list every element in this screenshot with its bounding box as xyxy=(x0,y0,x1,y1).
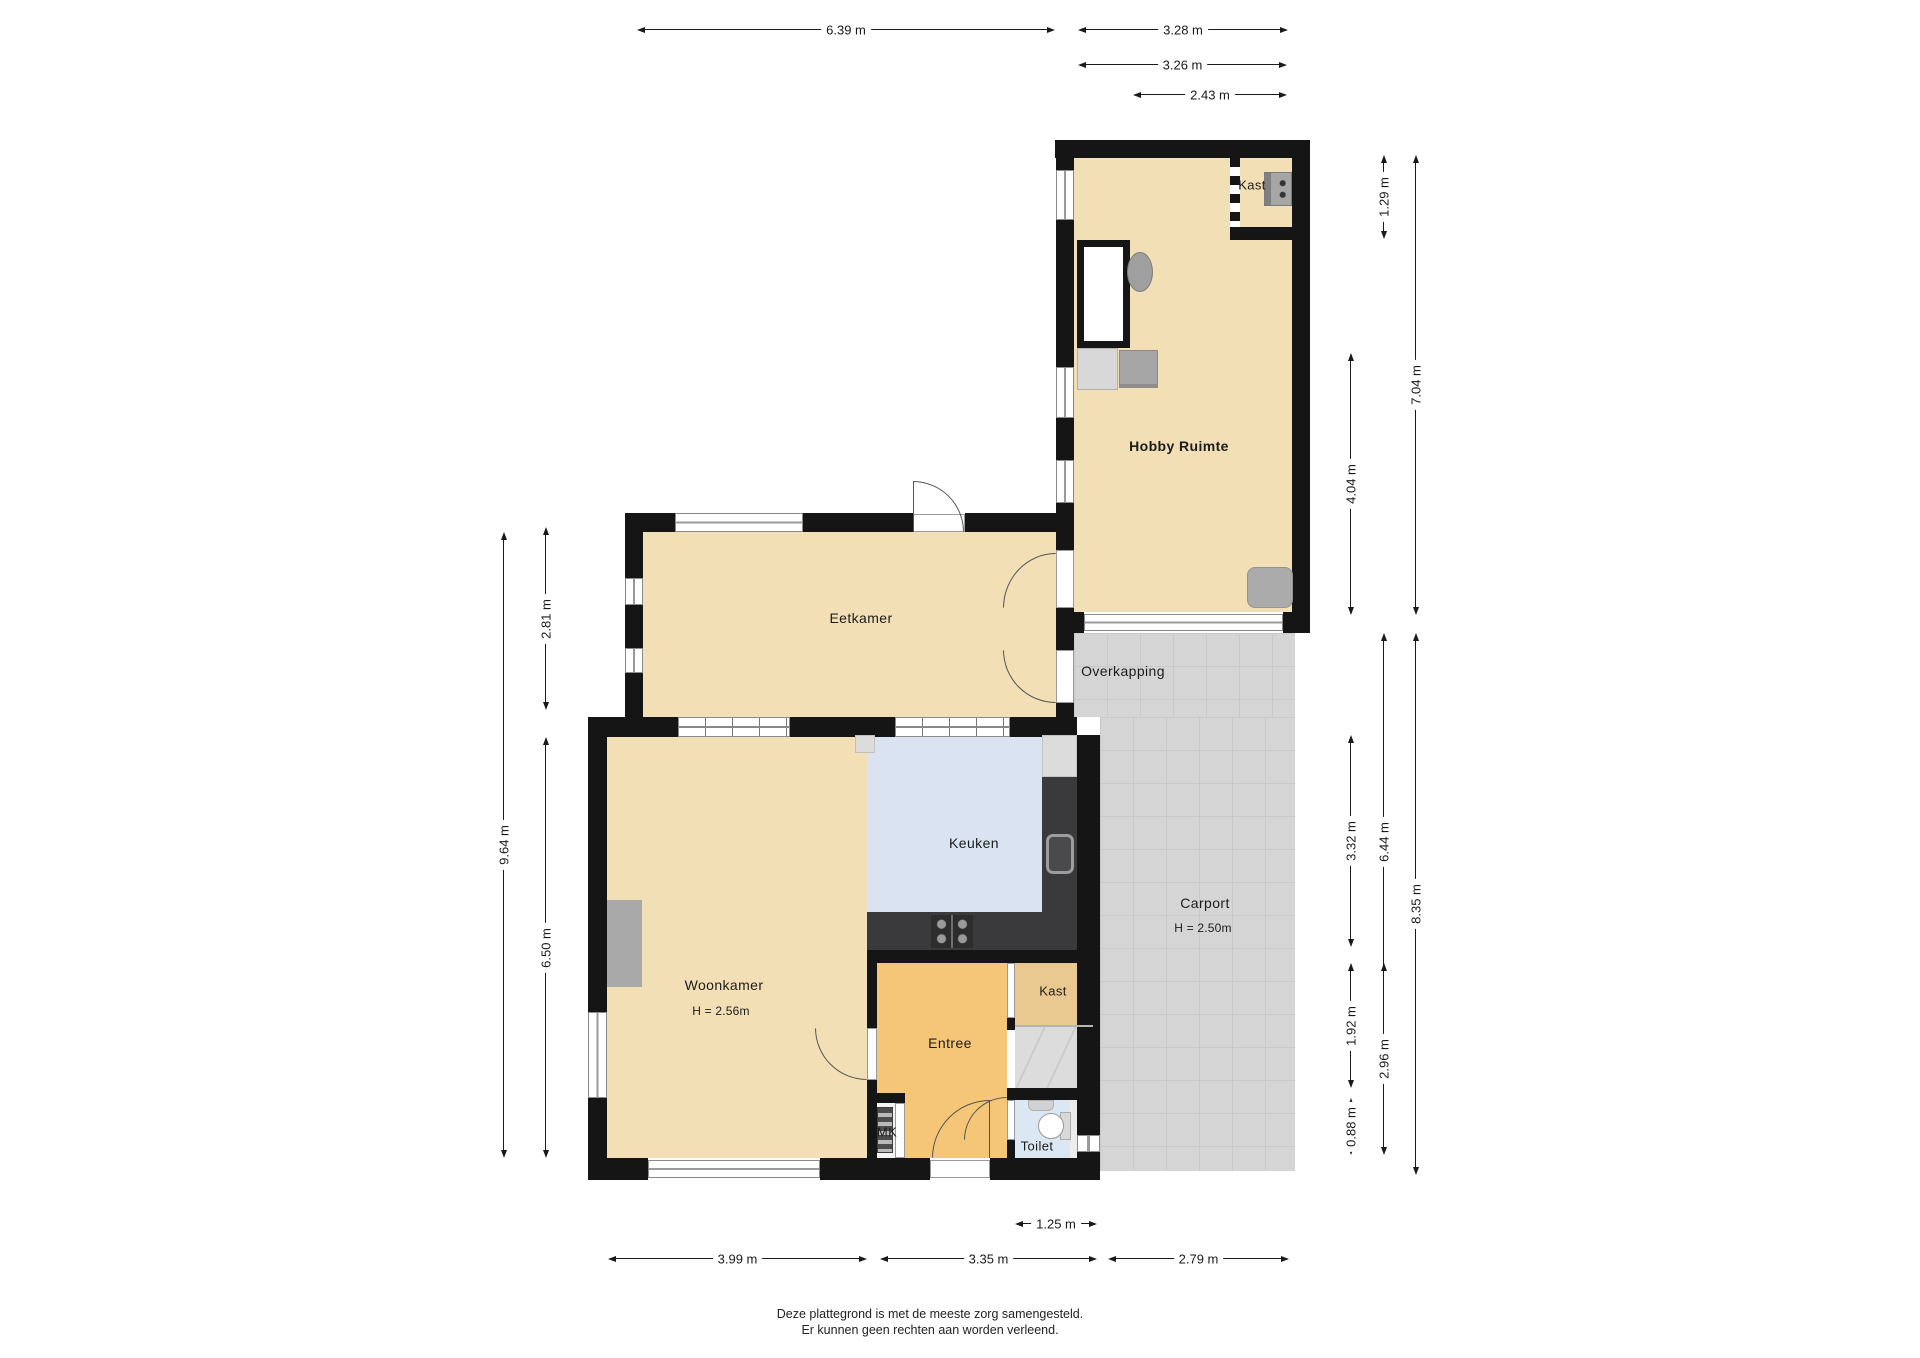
wall xyxy=(1010,717,1077,737)
room-label-keuken: Keuken xyxy=(949,835,999,851)
door-opening xyxy=(1056,650,1074,703)
dimension-top-639: 6.39 m xyxy=(637,23,1055,36)
wall xyxy=(625,605,643,648)
room-label-mk: MK xyxy=(877,1125,897,1140)
living-room-floor xyxy=(607,737,867,1158)
wall xyxy=(1283,612,1310,633)
dimension-bottom-279: 2.79 m xyxy=(1108,1252,1289,1265)
room-label-overkapping: Overkapping xyxy=(1081,663,1165,679)
wall xyxy=(625,673,643,717)
wall xyxy=(820,1158,930,1180)
washbasin xyxy=(1127,252,1153,292)
room-label-entree: Entree xyxy=(928,1035,972,1051)
wall xyxy=(867,963,877,1028)
interior-window xyxy=(678,717,790,737)
toilet-window xyxy=(1077,1135,1100,1152)
window xyxy=(588,1012,607,1098)
dimension-left-281: 2.81 m xyxy=(539,527,552,710)
wall xyxy=(1007,1088,1100,1100)
cabinet xyxy=(607,900,642,987)
dimension-top-243: 2.43 m xyxy=(1133,88,1287,101)
door-opening xyxy=(867,1028,877,1080)
kitchen-sink xyxy=(1046,834,1074,874)
window xyxy=(675,513,803,532)
wall xyxy=(867,1103,877,1158)
disclaimer-line-1: Deze plattegrond is met de meeste zorg s… xyxy=(530,1306,1330,1322)
dimension-bottom-125: 1.25 m xyxy=(1015,1217,1097,1230)
appliance-washer xyxy=(1077,348,1118,390)
window xyxy=(1056,460,1074,503)
room-label-kast-top: Kast xyxy=(1238,178,1266,193)
dimension-top-326: 3.26 m xyxy=(1078,58,1287,71)
room-label-woonkamer: Woonkamer xyxy=(685,977,764,993)
disclaimer-line-2: Er kunnen geen rechten aan worden verlee… xyxy=(530,1322,1330,1338)
wall xyxy=(867,950,1100,963)
boiler-unit xyxy=(1264,172,1292,206)
dimension-right-404: 4.04 m xyxy=(1344,353,1357,615)
wall xyxy=(965,513,1056,532)
wall xyxy=(867,1080,877,1093)
dimension-right-088: 0.88 m xyxy=(1344,1098,1357,1155)
wall xyxy=(1007,1140,1015,1158)
room-label-kast-bottom: Kast xyxy=(1039,984,1067,999)
chimney-column xyxy=(855,735,875,753)
wall xyxy=(588,1158,648,1180)
dimension-right-296: 2.96 m xyxy=(1377,963,1390,1155)
wall xyxy=(867,1093,905,1103)
room-label-carport: Carport xyxy=(1180,895,1229,911)
disclaimer: Deze plattegrond is met de meeste zorg s… xyxy=(530,1306,1330,1338)
closet-dashed-wall xyxy=(1230,158,1240,227)
wall xyxy=(588,737,607,1012)
window xyxy=(1056,367,1074,418)
front-door-opening xyxy=(930,1160,990,1178)
dimension-right-332: 3.32 m xyxy=(1344,735,1357,947)
window xyxy=(625,648,643,673)
room-label-eetkamer: Eetkamer xyxy=(829,610,892,626)
wall xyxy=(1077,1152,1100,1180)
toilet-sink xyxy=(1028,1100,1054,1111)
room-height-carport: H = 2.50m xyxy=(1174,921,1232,935)
wall xyxy=(803,513,913,532)
door-opening xyxy=(1056,550,1074,608)
shower-cabin xyxy=(1077,240,1130,348)
dimension-top-328: 3.28 m xyxy=(1078,23,1288,36)
window xyxy=(1056,170,1074,220)
closet-door-opening xyxy=(1007,963,1015,1018)
dimension-bottom-335: 3.35 m xyxy=(880,1252,1097,1265)
wall xyxy=(1056,612,1084,633)
dimension-left-964: 9.64 m xyxy=(497,532,510,1158)
toilet-bowl xyxy=(1038,1113,1064,1139)
wall xyxy=(790,717,895,737)
wall xyxy=(1292,140,1310,633)
wall xyxy=(1056,140,1074,170)
wall xyxy=(625,513,675,532)
fridge xyxy=(1042,735,1077,777)
wall xyxy=(625,532,643,578)
dimension-right-704: 7.04 m xyxy=(1409,155,1422,615)
dimension-bottom-399: 3.99 m xyxy=(608,1252,867,1265)
dimension-right-192: 1.92 m xyxy=(1344,963,1357,1088)
carport-area xyxy=(1100,717,1295,1171)
interior-window xyxy=(895,717,1010,737)
window xyxy=(648,1160,820,1178)
wall xyxy=(1056,220,1074,367)
room-height-woonkamer: H = 2.56m xyxy=(692,1004,750,1018)
wall xyxy=(1055,140,1310,158)
room-label-toilet: Toilet xyxy=(1021,1139,1054,1154)
window xyxy=(625,578,643,605)
wall xyxy=(1230,227,1292,240)
toilet-door-opening xyxy=(1007,1100,1015,1140)
wall xyxy=(1056,418,1074,460)
sliding-window xyxy=(1084,614,1283,631)
floorplan-canvas: Hobby Ruimte Kast Eetkamer Overkapping K… xyxy=(0,0,1920,1358)
door-swing-arc xyxy=(913,481,964,532)
wall xyxy=(1056,503,1074,550)
dimension-right-129: 1.29 m xyxy=(1377,155,1390,239)
stove xyxy=(931,915,973,948)
kitchen-floor xyxy=(867,737,1042,912)
room-label-hobby: Hobby Ruimte xyxy=(1129,438,1229,454)
wall xyxy=(588,717,678,737)
dimension-left-650: 6.50 m xyxy=(539,737,552,1158)
door-leaf xyxy=(913,481,914,532)
sofa xyxy=(1247,567,1293,608)
floor-boundary xyxy=(1015,1025,1093,1027)
wall xyxy=(1007,1018,1015,1030)
wall xyxy=(1077,735,1100,1135)
dimension-right-835: 8.35 m xyxy=(1409,633,1422,1175)
appliance-dryer xyxy=(1119,350,1158,388)
